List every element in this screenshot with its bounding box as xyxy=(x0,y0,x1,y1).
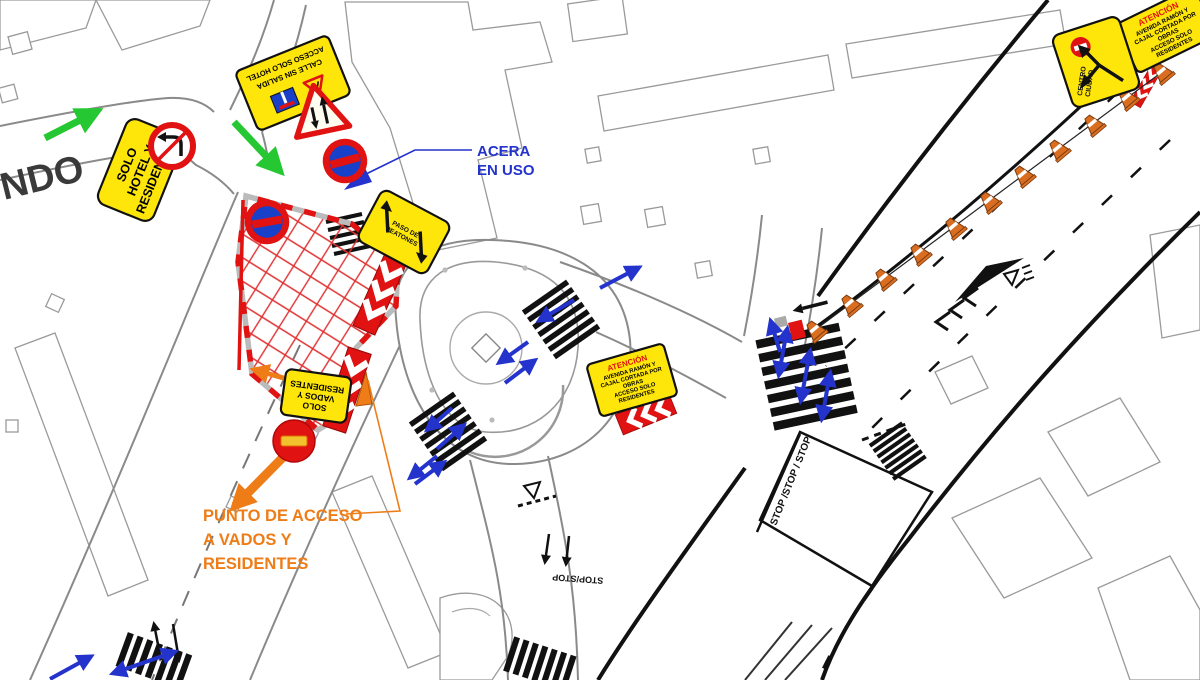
no-entry-sign xyxy=(273,420,315,462)
parking-strips xyxy=(745,622,832,680)
note-line: RESIDENTES xyxy=(203,555,308,573)
chevron-marking xyxy=(936,288,978,330)
sign-no-stopping xyxy=(245,200,289,244)
arm-curb xyxy=(744,215,762,336)
avenue-lane-dashes xyxy=(826,92,1118,366)
yield-triangle-marking xyxy=(1004,270,1018,285)
stop-text-marking: STOP/STOP xyxy=(552,572,604,586)
building-outline xyxy=(581,204,602,225)
traffic-cone-icon xyxy=(1045,136,1071,162)
punto-acceso-note: PUNTO DE ACCESO A VADOS Y RESIDENTES xyxy=(203,507,363,573)
traffic-works-plan: STOP /STOP / STOP STOP/STOP xyxy=(0,0,1200,680)
lane-arrow-marking xyxy=(545,534,549,562)
avenue-edge xyxy=(598,468,745,680)
street-curb xyxy=(0,98,214,126)
traffic-cone-icon xyxy=(976,188,1002,214)
building-outline xyxy=(6,420,18,432)
arm-curb xyxy=(548,456,578,680)
barrier-base xyxy=(774,316,788,329)
building-outline xyxy=(96,0,210,50)
acera-note: ACERA EN USO xyxy=(477,143,535,179)
blue-arrow xyxy=(50,657,90,679)
building-outline xyxy=(935,356,988,404)
blue-arrow xyxy=(415,463,443,484)
building-outline xyxy=(1048,398,1160,496)
cone-line xyxy=(802,59,1175,343)
note-line: ACERA xyxy=(477,143,531,160)
note-line: EN USO xyxy=(477,162,535,179)
building-outline xyxy=(598,55,834,131)
yield-triangle-marking xyxy=(524,482,540,498)
building-outline xyxy=(695,261,712,278)
sign-no-left-turn xyxy=(151,125,193,167)
arm-curb xyxy=(560,262,742,342)
stop-bar-marks xyxy=(1022,265,1034,280)
building-outline xyxy=(15,333,148,596)
building-outline xyxy=(568,0,628,42)
building-outline xyxy=(1098,556,1200,680)
building-outline xyxy=(952,478,1092,598)
building-outline xyxy=(332,476,448,668)
zebra-crossing xyxy=(503,636,576,680)
give-way-line xyxy=(518,496,556,506)
street-name-label: NDO xyxy=(0,148,88,209)
blue-arrow xyxy=(411,456,437,477)
building-outline xyxy=(1150,225,1200,338)
sign-solo-vados: SOLO VADOS Y RESIDENTES xyxy=(280,369,352,424)
building-outline xyxy=(645,207,666,228)
closure-line xyxy=(239,200,243,370)
building-outline xyxy=(46,294,65,313)
note-line: PUNTO DE ACCESO xyxy=(203,507,363,525)
building-outline xyxy=(585,147,601,163)
note-line: A VADOS Y xyxy=(203,531,292,549)
building-outline xyxy=(753,147,770,164)
no-entry-bar-icon xyxy=(281,436,307,446)
zebra-crossing xyxy=(116,632,193,680)
green-route-arrow xyxy=(234,122,279,170)
building-outline xyxy=(0,84,18,103)
